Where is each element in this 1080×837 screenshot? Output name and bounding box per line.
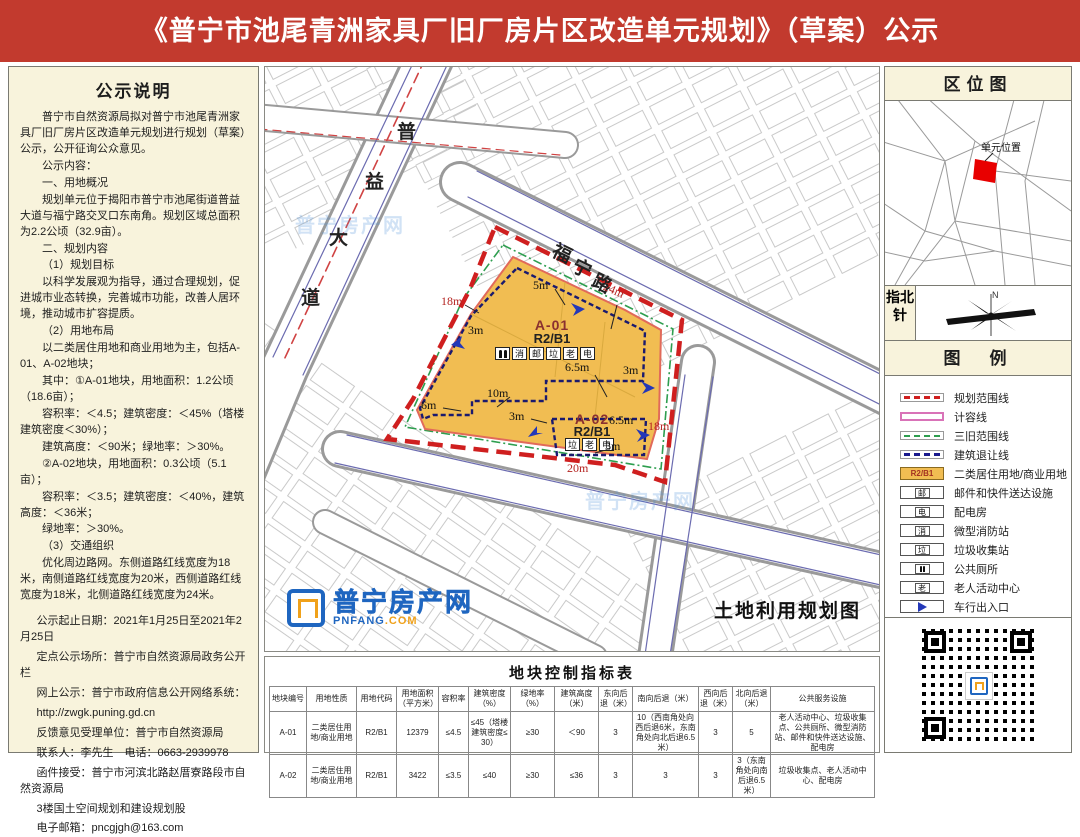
legend-item: 规划范围线 bbox=[899, 388, 1071, 407]
road-name-puyi-avenue: 益 bbox=[365, 167, 384, 194]
road-name-puyi-avenue: 道 bbox=[301, 283, 320, 310]
legend-heading: 图 例 bbox=[884, 340, 1072, 376]
contact-person-phone: 联系人：李先生 电话：0663-2939978 bbox=[20, 746, 247, 762]
legend-item: R2/B1二类居住用地/商业用地 bbox=[899, 464, 1071, 483]
notice-paragraph: 容积率：＜4.5；建筑密度：＜45%（塔楼建筑密度＜30%）； bbox=[20, 407, 247, 439]
elderly-center-icon: 老 bbox=[563, 347, 578, 360]
parcel-a01-use: R2/B1 bbox=[517, 331, 587, 346]
legend-item: 公共厕所 bbox=[899, 559, 1071, 578]
location-map-heading: 区位图 bbox=[884, 66, 1072, 101]
power-room-icon: 电 bbox=[900, 505, 944, 518]
three-old-boundary-line-icon bbox=[900, 431, 944, 440]
control-indicator-table-panel: 地块控制指标表 地块编号用地性质 用地代码用地面积（平方米） 容积率建筑密度（%… bbox=[264, 656, 880, 753]
dim-setback: 6.5m bbox=[609, 413, 633, 428]
notice-paragraph: 公示内容： bbox=[20, 159, 247, 175]
mail-address-2: 3楼国土空间规划和建设规划股 bbox=[20, 802, 247, 818]
planning-boundary-line-icon bbox=[900, 393, 944, 402]
table-title: 地块控制指标表 bbox=[269, 662, 875, 683]
garbage-station-icon: 垃 bbox=[565, 438, 580, 451]
garbage-station-icon: 垃 bbox=[900, 543, 944, 556]
dim-road-width-east: 18m bbox=[648, 419, 669, 434]
location-map: 单元位置 bbox=[884, 100, 1072, 286]
legend-item: 计容线 bbox=[899, 407, 1071, 426]
watermark-text: 普宁房产网 bbox=[295, 209, 405, 238]
dim-setback: 5m bbox=[533, 278, 548, 293]
notice-paragraph: 一、用地概况 bbox=[20, 176, 247, 192]
location-map-drawing bbox=[885, 101, 1071, 285]
watermark-text: 普宁房产网 bbox=[585, 485, 695, 514]
dim-setback: 6.5m bbox=[565, 360, 589, 375]
table-row: A-01二类居住用地/商业用地 R2/B112379 ≤4.5≤45（塔楼建筑密… bbox=[270, 712, 875, 755]
notice-paragraph: 普宁市自然资源局拟对普宁市池尾青洲家具厂旧厂房片区改造单元规划进行规划（草案）公… bbox=[20, 110, 247, 158]
legend-item: 邮邮件和快件送达设施 bbox=[899, 483, 1071, 502]
feedback-unit: 反馈意见受理单位：普宁市自然资源局 bbox=[20, 726, 247, 742]
notice-paragraph: 优化周边路网。东侧道路红线宽度为18米，南侧道路红线宽度为20米，西侧道路红线宽… bbox=[20, 556, 247, 604]
table-row: A-02二类居住用地/商业用地 R2/B13422 ≤3.5≤40 ≥30≤36… bbox=[270, 755, 875, 798]
dim-setback: 3m bbox=[605, 439, 620, 454]
unit-location-marker bbox=[973, 159, 997, 183]
notice-paragraph: 建筑高度：＜90米；绿地率：＞30%。 bbox=[20, 440, 247, 456]
road-name-puyi-avenue: 普 bbox=[397, 117, 416, 144]
publish-url: http://zwgk.puning.gd.cn bbox=[20, 706, 247, 722]
notice-heading: 公示说明 bbox=[20, 77, 247, 102]
land-use-plan-map: 普宁房产网 普宁房产网 普 益 大 道 福 宁 路 A-01 R2/B1 消 邮… bbox=[264, 66, 880, 652]
legend-item: 车行出入口 bbox=[899, 597, 1071, 616]
power-room-icon: 电 bbox=[580, 347, 595, 360]
legend-item: 电配电房 bbox=[899, 502, 1071, 521]
fire-station-icon: 消 bbox=[900, 524, 944, 537]
far-line-icon bbox=[900, 412, 944, 421]
notice-paragraph: 容积率：＜3.5；建筑密度：＜40%，建筑高度：＜36米； bbox=[20, 490, 247, 522]
car-entrance-arrow-icon bbox=[900, 600, 944, 613]
legend-item: 老老人活动中心 bbox=[899, 578, 1071, 597]
dim-setback: 6m bbox=[421, 398, 436, 413]
dim-road-width-west: 18m bbox=[441, 294, 462, 309]
publish-place: 定点公示场所：普宁市自然资源局政务公开栏 bbox=[20, 650, 247, 682]
table-header-row: 地块编号用地性质 用地代码用地面积（平方米） 容积率建筑密度（%） 绿地率（%）… bbox=[270, 687, 875, 712]
public-toilet-icon bbox=[495, 347, 510, 360]
elderly-center-icon: 老 bbox=[582, 438, 597, 451]
mail-facility-icon: 邮 bbox=[900, 486, 944, 499]
dim-setback: 3m bbox=[509, 409, 524, 424]
notice-paragraph: ②A-02地块，用地面积：0.3公顷（5.1亩）； bbox=[20, 457, 247, 489]
control-indicator-table: 地块编号用地性质 用地代码用地面积（平方米） 容积率建筑密度（%） 绿地率（%）… bbox=[269, 686, 875, 798]
notice-paragraph: 以二类居住用地和商业用地为主，包括A-01、A-02地块； bbox=[20, 341, 247, 373]
fire-station-icon: 消 bbox=[512, 347, 527, 360]
dim-setback: 3m bbox=[468, 323, 483, 338]
notice-paragraph: （2）用地布局 bbox=[20, 324, 247, 340]
parcel-a01-facility-icons: 消 邮 垃 老 电 bbox=[495, 347, 595, 360]
site-logo-name: 普宁房产网 bbox=[333, 589, 473, 615]
online-publish: 网上公示：普宁市政府信息公开网络系统： bbox=[20, 686, 247, 702]
notice-paragraph: （3）交通组织 bbox=[20, 539, 247, 555]
r2b1-swatch-icon: R2/B1 bbox=[900, 467, 944, 480]
map-title: 土地利用规划图 bbox=[714, 596, 861, 623]
mail-address-1: 函件接受：普宁市河滨北路赵厝寮路段市自然资源局 bbox=[20, 766, 247, 798]
unit-location-label: 单元位置 bbox=[981, 139, 1021, 154]
notice-paragraph: 绿地率：＞30%。 bbox=[20, 522, 247, 538]
setback-line-icon bbox=[900, 450, 944, 459]
qr-code-section bbox=[884, 617, 1072, 753]
compass-section: 指北针 N bbox=[884, 285, 1072, 341]
dim-setback: 10m bbox=[487, 386, 508, 401]
dim-road-width-south: 20m bbox=[567, 461, 588, 476]
publish-dates: 公示起止日期：2021年1月25日至2021年2月25日 bbox=[20, 614, 247, 646]
legend-item: 建筑退让线 bbox=[899, 445, 1071, 464]
dim-setback: 3m bbox=[623, 363, 638, 378]
compass-rose-icon bbox=[916, 286, 1071, 340]
notice-paragraph: 二、规划内容 bbox=[20, 242, 247, 258]
road-name-puyi-avenue: 大 bbox=[329, 223, 348, 250]
elderly-center-icon: 老 bbox=[900, 581, 944, 594]
compass-heading: 指北针 bbox=[885, 286, 916, 340]
legend: 规划范围线 计容线 三旧范围线 建筑退让线 R2/B1二类居住用地/商业用地 邮… bbox=[884, 375, 1072, 618]
page-title: 《普宁市池尾青洲家具厂旧厂房片区改造单元规划》（草案）公示 bbox=[0, 0, 1080, 62]
notice-paragraph: 以科学发展观为指导，通过合理规划，促进城市业态转换，完善城市功能，改善人居环境，… bbox=[20, 275, 247, 323]
legend-item: 消微型消防站 bbox=[899, 521, 1071, 540]
contact-email: 电子邮箱：pncgjgh@163.com bbox=[20, 821, 247, 837]
site-logo: 普宁房产网 PNFANG.COM bbox=[287, 589, 473, 627]
public-toilet-icon bbox=[900, 562, 944, 575]
legend-item: 垃垃圾收集站 bbox=[899, 540, 1071, 559]
notice-paragraph: 规划单元位于揭阳市普宁市池尾街道普益大道与福宁路交叉口东南角。规划区域总面积为2… bbox=[20, 193, 247, 241]
mail-facility-icon: 邮 bbox=[529, 347, 544, 360]
legend-item: 三旧范围线 bbox=[899, 426, 1071, 445]
garbage-station-icon: 垃 bbox=[546, 347, 561, 360]
notice-panel: 公示说明 普宁市自然资源局拟对普宁市池尾青洲家具厂旧厂房片区改造单元规划进行规划… bbox=[8, 66, 259, 753]
site-logo-icon bbox=[287, 589, 325, 627]
notice-contact-block: 公示起止日期：2021年1月25日至2021年2月25日 定点公示场所：普宁市自… bbox=[20, 614, 247, 837]
notice-paragraph: 其中：①A-01地块，用地面积：1.2公顷（18.6亩）； bbox=[20, 374, 247, 406]
qr-center-logo bbox=[965, 672, 993, 700]
notice-paragraph: （1）规划目标 bbox=[20, 258, 247, 274]
qr-code bbox=[922, 629, 1034, 741]
header-banner: 《普宁市池尾青洲家具厂旧厂房片区改造单元规划》（草案）公示 bbox=[0, 0, 1080, 62]
